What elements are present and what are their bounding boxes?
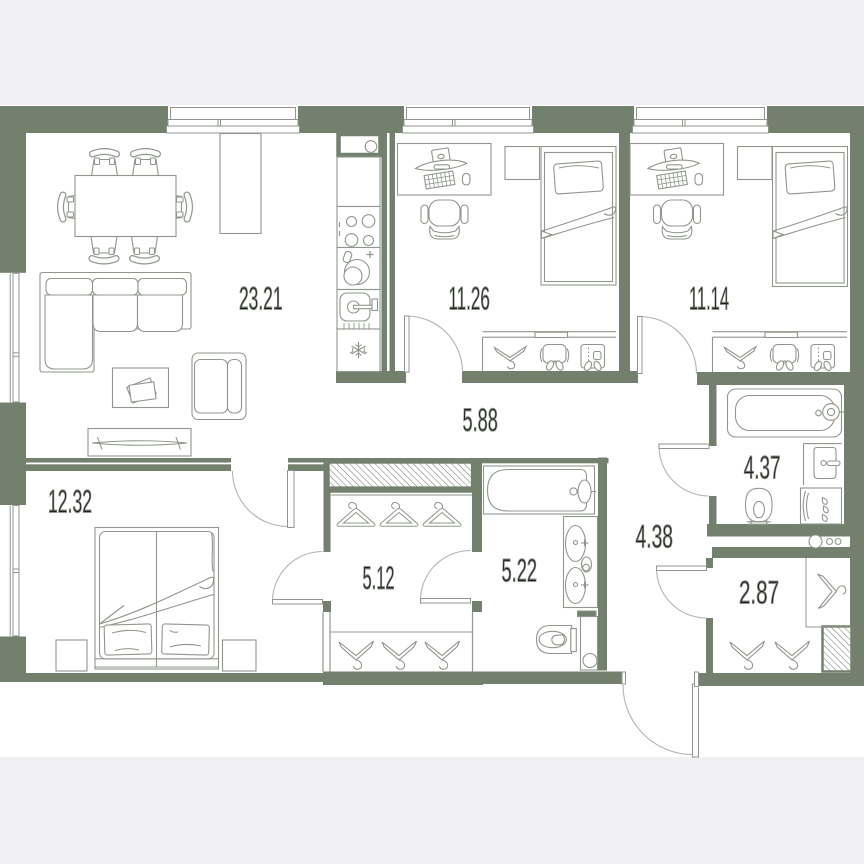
svg-text:4.38: 4.38 bbox=[636, 519, 674, 555]
svg-text:11.26: 11.26 bbox=[449, 281, 490, 317]
svg-text:4.37: 4.37 bbox=[744, 449, 781, 485]
svg-text:12.32: 12.32 bbox=[48, 484, 92, 520]
svg-text:23.21: 23.21 bbox=[239, 281, 283, 317]
svg-text:5.12: 5.12 bbox=[363, 560, 395, 596]
svg-text:5.88: 5.88 bbox=[463, 402, 498, 438]
svg-text:11.14: 11.14 bbox=[689, 281, 729, 317]
svg-text:2.87: 2.87 bbox=[739, 575, 779, 611]
svg-text:5.22: 5.22 bbox=[502, 553, 538, 589]
